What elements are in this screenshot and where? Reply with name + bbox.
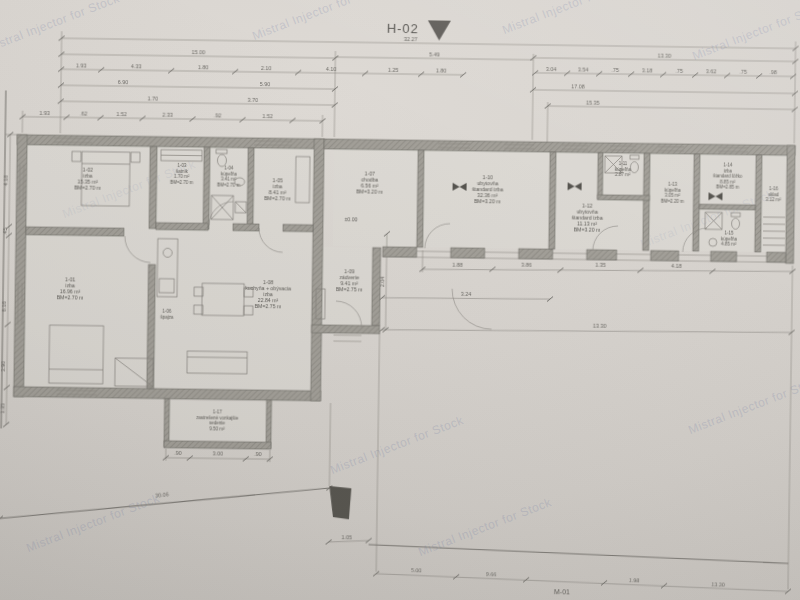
dim-value: 3.90 <box>0 361 6 372</box>
dim-value: 13.30 <box>593 323 607 329</box>
room-code: 1-14 <box>723 163 733 168</box>
room-code: 1-11 <box>619 161 628 166</box>
dim-value: 1.98 <box>629 577 640 583</box>
room-area: 2.87 m² <box>615 172 631 177</box>
room-code: 1-16 <box>769 186 779 191</box>
drawing-tilt-wrapper: H-02 <box>0 0 800 600</box>
dim-value: .45 <box>2 228 8 236</box>
section-mark-label: H-02 <box>387 21 419 36</box>
room-code: 1-04 <box>224 166 234 171</box>
dim-value: 15.35 <box>586 100 600 106</box>
room-name: izba <box>724 168 733 173</box>
dim-value: 3.24 <box>461 291 472 297</box>
dim-value: 5.00 <box>411 567 422 573</box>
dim-value: 3.54 <box>578 66 589 72</box>
room-code: 1-17 <box>213 409 223 414</box>
room-area: 9.50 m² <box>210 426 226 431</box>
gate-symbol-icon <box>329 486 351 519</box>
dim-value: 2.10 <box>261 65 272 71</box>
room-name: kúpeľňa <box>664 187 681 192</box>
dim-value: 2.04 <box>379 276 385 287</box>
dim-value: 1.80 <box>198 64 209 70</box>
dim-value: 5.90 <box>260 81 271 87</box>
room-name: štandard lôžko <box>713 173 743 178</box>
room-height: BM=2.75 m <box>255 303 282 309</box>
room-height: BM=2.70 m <box>170 179 193 184</box>
room-area: 4.85 m² <box>721 241 737 246</box>
dim-value: 17.08 <box>571 83 585 89</box>
room-area: 8.85 m² <box>720 179 736 184</box>
room-name: sedenie <box>209 420 225 425</box>
room-name: kúpeľňa <box>221 171 238 176</box>
dim-value: 1.88 <box>452 262 463 268</box>
dim-value: .98 <box>769 69 777 75</box>
dim-value: 3.00 <box>213 450 224 456</box>
dim-value: 3.70 <box>247 97 258 103</box>
dim-value: 30.06 <box>155 491 169 498</box>
room-area: 3.12 m² <box>766 197 782 202</box>
room-name: špajza <box>160 314 174 319</box>
dim-value: 3.04 <box>546 66 557 72</box>
room-name: sklad <box>768 192 779 197</box>
dim-value: 5.49 <box>429 51 440 57</box>
dim-value: 4.33 <box>131 63 142 69</box>
room-area: 3.41 m² <box>221 176 237 181</box>
room-height: BM=3.20 m <box>474 198 501 204</box>
room-height: BM=3.20 m <box>574 226 601 232</box>
dim-value: 4.18 <box>671 263 682 269</box>
dim-value: .62 <box>80 111 88 117</box>
dim-value: 15.00 <box>192 49 206 55</box>
room-height: BM=2.75 m <box>336 286 363 292</box>
room-height: BM=2.70 m <box>57 294 84 300</box>
dim-value: .92 <box>214 112 222 118</box>
room-height: BM=2.70 m <box>217 182 240 187</box>
dim-value: 3.18 <box>642 67 653 73</box>
dim-value: 4.10 <box>326 66 337 72</box>
floor-plan-photo: Mistral Injector for Stock Mistral Injec… <box>0 0 800 600</box>
dim-value: 4.18 <box>3 175 9 186</box>
room-code: 1-06 <box>162 309 172 314</box>
dim-value: 1.52 <box>116 111 127 117</box>
dim-value: 1.35 <box>595 262 606 268</box>
room-height: BM=2.70 m <box>74 184 101 190</box>
dim-value: 3.62 <box>706 68 717 74</box>
room-name: šatník <box>176 168 189 173</box>
dim-value: 1.70 <box>147 95 158 101</box>
dim-value: 1.93 <box>39 110 50 116</box>
dim-value: 13.30 <box>711 581 725 588</box>
dim-value: 1.35 <box>0 403 6 414</box>
dim-value: 6.90 <box>118 79 129 85</box>
dim-value: 1.05 <box>341 534 352 540</box>
room-height: BM=2.85 m <box>716 184 739 189</box>
dim-value: .75 <box>611 67 619 73</box>
room-height: BM=2.20 m <box>661 198 684 203</box>
room-area: 1.70 m² <box>174 174 190 179</box>
dim-value: 1.25 <box>388 67 399 73</box>
room-code: 1-13 <box>668 182 678 187</box>
room-code: 1-15 <box>724 231 734 236</box>
room-code: 1-03 <box>177 163 187 168</box>
dim-value: 6.16 <box>1 301 7 312</box>
dim-value: 3.86 <box>521 262 532 268</box>
room-height: BM=3.20 m <box>356 188 383 194</box>
room-height: BM=2.70 m <box>264 195 291 201</box>
dim-value: 1.80 <box>436 67 447 73</box>
room-name: zastrešené vonkajšie <box>196 415 239 421</box>
dim-value: 1.93 <box>76 62 87 68</box>
room-name: kúpeľňa <box>615 166 632 171</box>
dim-value: 32.27 <box>404 36 418 42</box>
dim-value: .75 <box>675 68 683 74</box>
section-mark-bottom: M-01 <box>554 588 570 595</box>
dim-value: 1.52 <box>262 113 273 119</box>
elevation-mark: ±0.00 <box>345 216 358 222</box>
dim-value: .90 <box>174 450 182 456</box>
dim-value: 9.66 <box>486 571 497 577</box>
room-area: 3.05 m² <box>665 193 681 198</box>
dim-value: .75 <box>739 69 747 75</box>
section-mark-triangle-icon <box>428 20 451 40</box>
dim-value: 2.33 <box>162 112 173 118</box>
floor-plan-drawing: H-02 <box>0 0 800 600</box>
dim-value: 13.30 <box>658 53 672 59</box>
room-name: kúpeľňa <box>721 236 738 241</box>
dim-value: .90 <box>254 451 262 457</box>
